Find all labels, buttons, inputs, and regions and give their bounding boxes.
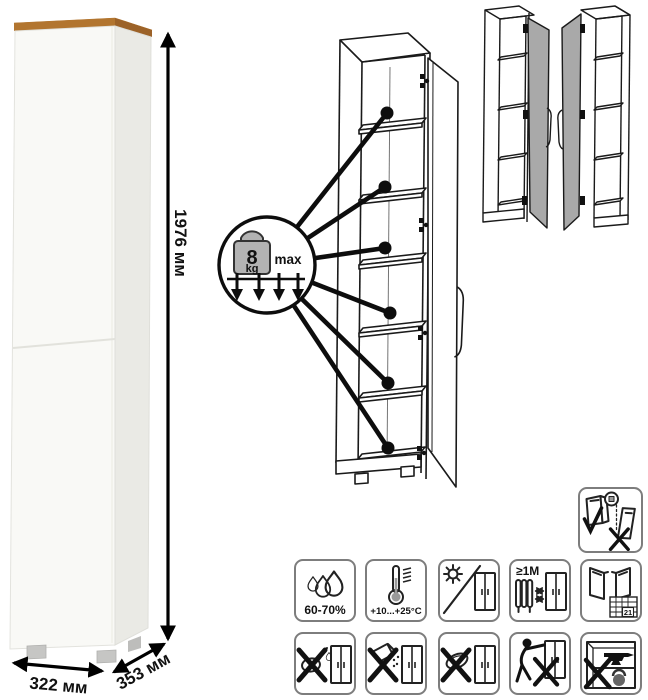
humidity-label: 60-70% [304, 603, 346, 617]
no-dragging-icon [509, 632, 571, 695]
height-label: 1976 мм [171, 209, 190, 277]
humidity-icon: 60-70% [294, 559, 356, 622]
open-door [428, 58, 463, 487]
temperature-icon: +10...+25°C [365, 559, 427, 622]
temperature-label: +10...+25°C [370, 606, 421, 617]
cabinet-body [10, 26, 151, 663]
anchor-to-wall-icon [578, 487, 643, 553]
shelves [358, 118, 426, 459]
furniture-spec-sheet: 1976 мм 322 мм 353 мм [0, 0, 648, 700]
no-direct-sunlight-icon [438, 559, 500, 622]
gray-door [562, 14, 581, 230]
no-heavy-items-icon [580, 632, 642, 695]
person [517, 639, 544, 682]
load-max-label: max [274, 252, 302, 267]
calendar: 21 [610, 597, 637, 617]
depth-dimension: 353 мм [113, 644, 173, 694]
calendar-day: 21 [624, 608, 632, 617]
width-label: 322 мм [29, 674, 89, 698]
foot [355, 473, 368, 484]
no-abrasive-powder-icon [365, 632, 427, 695]
foot [97, 650, 116, 663]
distance-label: ≥1M [516, 564, 539, 578]
gray-door [528, 18, 549, 228]
height-dimension: 1976 мм [168, 34, 190, 639]
load-limit-callout: 8 kg max [219, 217, 315, 313]
product-photo: 1976 мм 322 мм 353 мм [0, 0, 210, 700]
variant-door-right [483, 6, 551, 228]
ventilation-calendar-icon: 21 [580, 559, 642, 622]
door-mount-variants [476, 0, 648, 240]
no-scraping-icon [438, 632, 500, 695]
cabinet-top [340, 33, 430, 62]
heat-source-distance-icon: ≥1M [509, 559, 571, 622]
no-wet-cleaning-icon [294, 632, 356, 695]
width-dimension: 322 мм [14, 663, 102, 698]
load-unit: kg [246, 263, 259, 275]
foot [128, 636, 141, 652]
variant-door-left [558, 6, 630, 230]
foot [27, 645, 46, 659]
foot [401, 466, 414, 477]
shelf-load-diagram: 8 kg max [205, 15, 470, 500]
